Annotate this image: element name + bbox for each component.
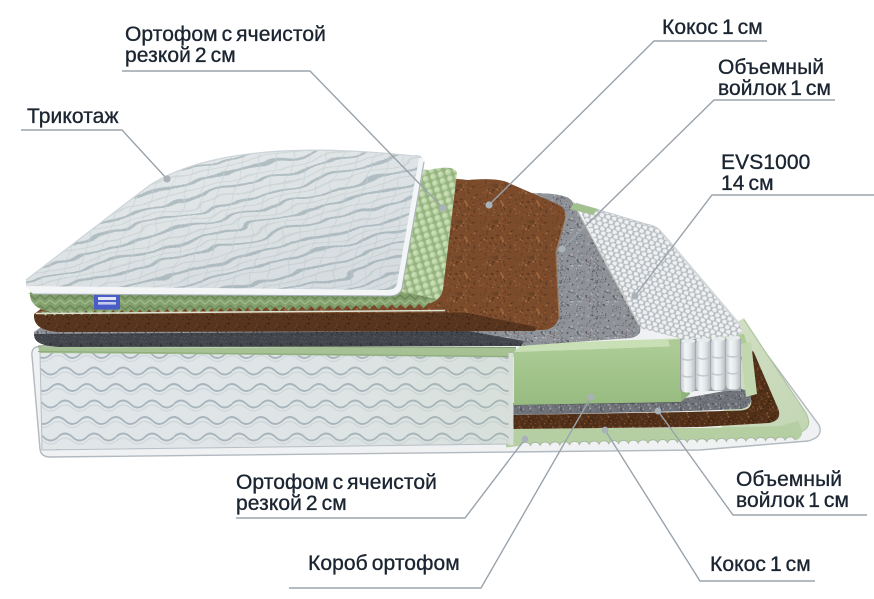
svg-text:Ортофом с ячеистой: Ортофом с ячеистой	[236, 471, 437, 494]
svg-text:Короб ортофом: Короб ортофом	[308, 552, 460, 575]
svg-text:Объемный: Объемный	[736, 468, 842, 491]
svg-text:резкой 2 см: резкой 2 см	[125, 44, 236, 67]
svg-text:14 см: 14 см	[721, 172, 774, 195]
svg-text:Ортофом с ячеистой: Ортофом с ячеистой	[125, 23, 326, 46]
svg-text:резкой 2 см: резкой 2 см	[236, 492, 347, 515]
svg-text:войлок 1 см: войлок 1 см	[718, 77, 831, 100]
svg-text:войлок 1 см: войлок 1 см	[736, 489, 849, 512]
svg-text:EVS1000: EVS1000	[721, 151, 810, 174]
svg-text:Объемный: Объемный	[718, 56, 824, 79]
svg-text:Трикотаж: Трикотаж	[27, 105, 119, 128]
svg-text:Кокос 1 см: Кокос 1 см	[662, 16, 763, 39]
svg-text:Кокос 1 см: Кокос 1 см	[710, 553, 811, 576]
